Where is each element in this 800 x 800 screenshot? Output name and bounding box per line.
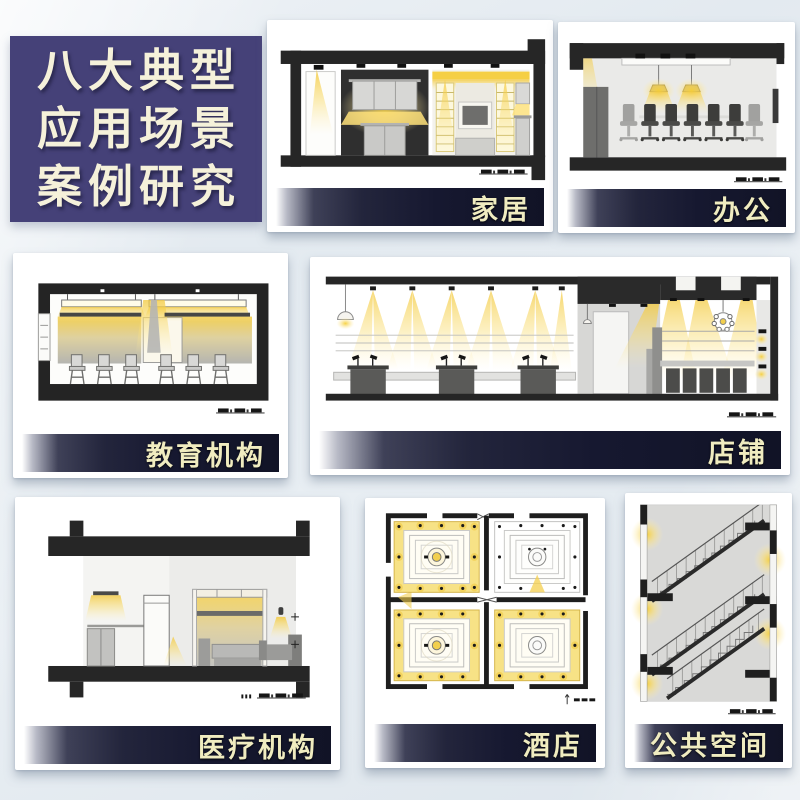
banner-label-shop: 店铺 (708, 431, 768, 470)
classroom-section-drawing (17, 257, 284, 428)
drawing-home (271, 24, 549, 182)
tv-wall-unit (432, 64, 531, 155)
banner-label-education: 教育机构 (146, 434, 266, 473)
drawing-office (562, 26, 791, 183)
middle-cabinet-unit (340, 64, 429, 155)
floor-slab (326, 394, 778, 401)
card-shop: 店铺 (310, 257, 790, 475)
drawing-education (17, 257, 284, 428)
banner-label-medical: 医疗机构 (198, 726, 318, 765)
banner-hotel: 酒店 (374, 724, 596, 762)
title-panel: 八大典型 应用场景 案例研究 (10, 36, 262, 222)
card-hotel: 酒店 (365, 498, 605, 768)
ceiling-plan-drawing (369, 502, 601, 718)
wardrobe-with-downlight (306, 65, 335, 155)
title-line-1: 八大典型 (31, 42, 241, 100)
drawing-public-space (629, 497, 788, 718)
scale-bar-icon (727, 412, 776, 417)
ceiling-fixtures (635, 54, 695, 59)
pendant-lamp-icon (337, 284, 355, 329)
promo-poster: 八大典型 应用场景 案例研究 (0, 0, 800, 800)
scale-bar-icon (241, 693, 305, 698)
drawing-shop (314, 261, 786, 425)
coffer-topright (495, 522, 580, 593)
door (144, 595, 169, 666)
coffer-topleft (394, 522, 479, 593)
title-line-2: 应用场景 (31, 100, 241, 158)
banner-label-home: 家居 (471, 188, 531, 227)
banner-shop: 店铺 (319, 431, 781, 469)
drawing-hotel (369, 502, 601, 718)
meeting-room-section-drawing (562, 26, 791, 183)
banner-education: 教育机构 (22, 434, 279, 472)
banner-label-public-space: 公共空间 (650, 724, 770, 763)
suspended-ceiling (622, 58, 730, 65)
card-medical: 医疗机构 (15, 497, 340, 770)
right-wall-shelves (755, 300, 771, 394)
drawing-medical (19, 501, 336, 720)
wall-niche (773, 89, 779, 123)
card-office: 办公 (558, 22, 795, 233)
banner-home: 家居 (276, 188, 544, 226)
banner-office: 办公 (567, 189, 786, 227)
wall-light-over-counter (85, 591, 126, 620)
scale-bar-icon (216, 408, 265, 413)
patient-room-section-drawing (19, 501, 336, 720)
right-wall (770, 277, 778, 401)
retail-section-drawing (314, 261, 786, 425)
north-scale-mark-icon (565, 694, 595, 704)
living-room-section-drawing (271, 24, 549, 182)
banner-label-office: 办公 (713, 189, 773, 228)
board-rail (60, 313, 142, 317)
card-public-space: 公共空间 (625, 493, 792, 768)
title-line-3: 案例研究 (31, 158, 241, 216)
right-bay (646, 277, 766, 394)
storage-cabinet (583, 87, 608, 157)
coffer-bottomleft (394, 610, 479, 681)
board-rail (165, 313, 250, 317)
coffer-bottomright (495, 610, 580, 681)
banner-medical: 医疗机构 (24, 726, 331, 764)
scale-bar-icon (734, 177, 782, 182)
card-home: 家居 (267, 20, 553, 232)
stairwell-section-drawing (629, 497, 788, 718)
scale-bar-icon (479, 170, 528, 175)
card-education: 教育机构 (13, 253, 288, 478)
scale-bar-icon (728, 709, 776, 714)
banner-public-space: 公共空间 (634, 724, 783, 762)
banner-label-hotel: 酒店 (523, 724, 583, 763)
bed-niche (193, 589, 267, 666)
